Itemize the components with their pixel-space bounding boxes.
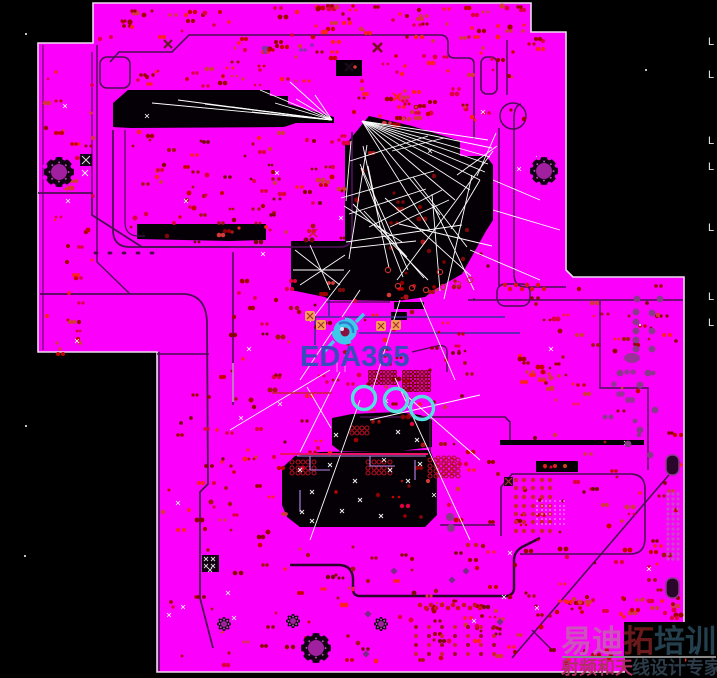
svg-text:L: L <box>708 222 714 234</box>
svg-text:线设计专家: 线设计专家 <box>632 657 717 678</box>
svg-text:L: L <box>708 291 714 303</box>
svg-text:拓: 拓 <box>623 624 654 659</box>
svg-text:L: L <box>708 36 714 48</box>
svg-text:培训: 培训 <box>654 624 716 659</box>
svg-text:L: L <box>708 135 714 147</box>
svg-text:L: L <box>708 161 714 173</box>
svg-text:EDA365: EDA365 <box>300 341 410 373</box>
svg-text:易迪: 易迪 <box>561 624 623 659</box>
svg-text:L: L <box>708 69 714 81</box>
svg-text:L: L <box>708 317 714 329</box>
svg-text:射频和天: 射频和天 <box>560 657 634 678</box>
